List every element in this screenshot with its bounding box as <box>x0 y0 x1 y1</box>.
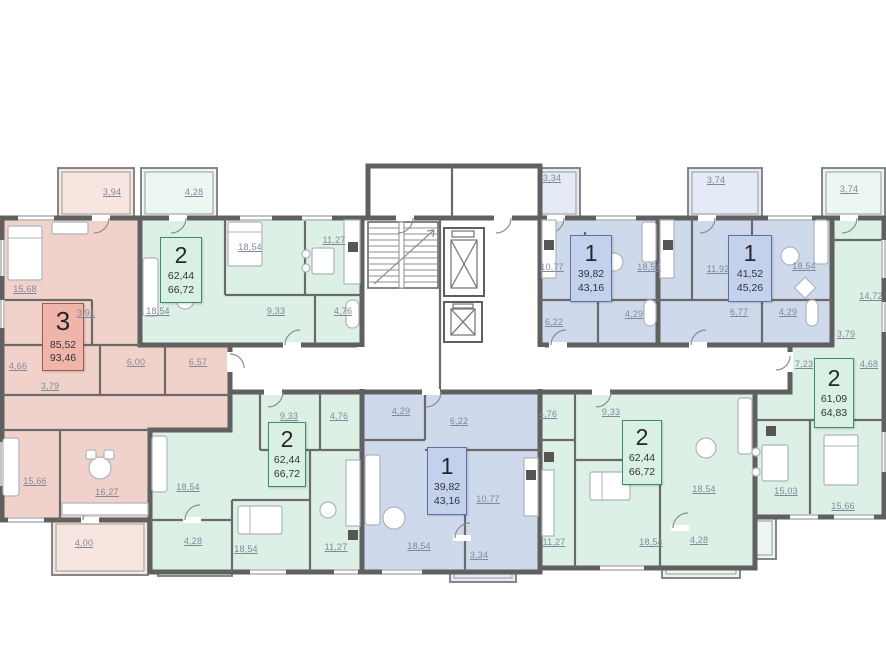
apartment-rooms-count: 2 <box>281 427 294 451</box>
entrance-vestibule <box>368 166 540 218</box>
balcony <box>58 168 134 218</box>
apartment-label-apt-2-bottom-right[interactable]: 2 62,44 66,72 <box>622 420 662 485</box>
apartment-area-living: 85,52 <box>50 339 76 353</box>
apartment-area-living: 41,52 <box>737 268 763 282</box>
apartment-area-total: 64,83 <box>821 407 847 421</box>
apartment-area-total: 43,16 <box>434 495 460 509</box>
apartment-rooms-count: 2 <box>828 366 841 390</box>
apartment-label-apt-1-top-center[interactable]: 1 39,82 43,16 <box>570 235 612 302</box>
floor-plan-drawing <box>0 0 886 670</box>
apartment-area-total: 66,72 <box>629 466 655 480</box>
apartment-area-total: 93,46 <box>50 352 76 366</box>
corridor <box>230 345 362 392</box>
apartment-rooms-count: 3 <box>56 308 70 335</box>
apartment-area-living: 62,44 <box>168 270 194 284</box>
elevator-shaft-large <box>444 228 484 296</box>
balcony <box>688 168 762 218</box>
elevator-shaft-small <box>444 302 482 342</box>
apartment-area-living: 39,82 <box>434 481 460 495</box>
apartment-label-apt-2-top-left[interactable]: 2 62,44 66,72 <box>160 237 202 303</box>
apartment-area-total: 66,72 <box>168 284 194 298</box>
apartment-rooms-count: 1 <box>744 241 757 265</box>
apartment-rooms-count: 1 <box>441 454 454 478</box>
apartment-label-apt-2-bottom-left[interactable]: 2 62,44 66,72 <box>268 422 306 487</box>
balcony <box>52 520 148 575</box>
apartment-area-total: 66,72 <box>274 468 300 482</box>
apartment-rooms-count: 2 <box>636 425 649 449</box>
floor-plan: 3 85,52 93,46 2 62,44 66,72 1 39,82 43,1… <box>0 0 886 670</box>
apartment-area-total: 45,26 <box>737 282 763 296</box>
apartment-label-apt-3-left[interactable]: 3 85,52 93,46 <box>42 303 84 371</box>
apartment-label-apt-1-bottom-center[interactable]: 1 39,82 43,16 <box>427 447 467 515</box>
apartment-area-total: 43,16 <box>578 282 604 296</box>
apartment-area-living: 39,82 <box>578 268 604 282</box>
apartment-rooms-count: 2 <box>175 243 188 267</box>
apartment-area-living: 61,09 <box>821 393 847 407</box>
apartment-label-apt-1-top-right[interactable]: 1 41,52 45,26 <box>728 235 772 302</box>
apartment-area-living: 62,44 <box>274 454 300 468</box>
apartment-rooms-count: 1 <box>585 241 598 265</box>
balcony <box>822 168 885 218</box>
apartment-area-living: 62,44 <box>629 452 655 466</box>
corridor <box>540 345 790 392</box>
apartment-label-apt-2-right[interactable]: 2 61,09 64,83 <box>814 358 854 428</box>
balcony <box>141 168 217 218</box>
